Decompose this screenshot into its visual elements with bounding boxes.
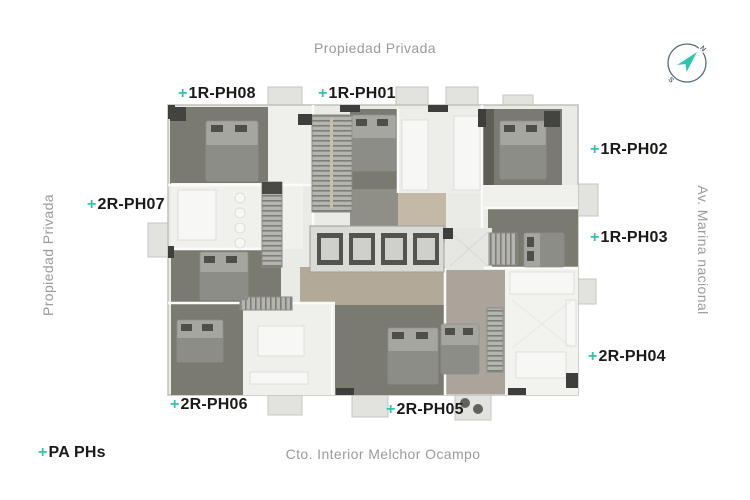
unit-name: 1R-PH02: [601, 141, 668, 158]
plus-icon: +: [588, 348, 598, 365]
unit-label-1r-ph08[interactable]: +1R-PH08: [178, 85, 256, 102]
plus-icon: +: [178, 85, 188, 102]
bed: [206, 121, 258, 181]
unit-label-2r-ph07[interactable]: +2R-PH07: [87, 196, 165, 213]
legend-pa-phs: +PA PHs: [38, 444, 106, 461]
unit-name: 2R-PH04: [599, 348, 666, 365]
bed: [388, 328, 438, 384]
stair-east: [489, 233, 517, 265]
bed: [177, 320, 223, 362]
plus-icon: +: [38, 444, 48, 461]
unit-name: 2R-PH05: [397, 401, 464, 418]
unit-label-2r-ph04[interactable]: +2R-PH04: [588, 348, 666, 365]
plus-icon: +: [87, 196, 97, 213]
unit-name: 1R-PH08: [189, 85, 256, 102]
street-label-top: Propiedad Privada: [314, 40, 436, 56]
bed: [352, 115, 396, 171]
plus-icon: +: [590, 229, 600, 246]
plus-icon: +: [170, 396, 180, 413]
legend-label: PA PHs: [49, 444, 106, 461]
unit-name: 2R-PH07: [98, 196, 165, 213]
street-label-right: Av. Marina nacional: [695, 185, 711, 314]
floor-plan: [0, 0, 750, 500]
compass-needle: [677, 52, 697, 72]
stair-south: [487, 308, 503, 372]
street-label-bottom: Cto. Interior Melchor Ocampo: [286, 446, 481, 462]
compass-icon: N S: [661, 36, 715, 90]
plus-icon: +: [590, 141, 600, 158]
compass-north-label: N: [698, 45, 707, 54]
bed: [441, 324, 479, 374]
bed: [200, 252, 248, 300]
bed: [524, 233, 564, 267]
unit-label-1r-ph01[interactable]: +1R-PH01: [318, 85, 396, 102]
unit-name: 2R-PH06: [181, 396, 248, 413]
unit-label-1r-ph02[interactable]: +1R-PH02: [590, 141, 668, 158]
plus-icon: +: [386, 401, 396, 418]
street-label-left: Propiedad Privada: [40, 194, 56, 316]
unit-name: 1R-PH03: [601, 229, 668, 246]
unit-name: 1R-PH01: [329, 85, 396, 102]
floorplan-page: Propiedad Privada Propiedad Privada Av. …: [0, 0, 750, 500]
terrace-chair: [473, 404, 483, 414]
compass-south-label: S: [666, 76, 674, 84]
plus-icon: +: [318, 85, 328, 102]
unit-label-2r-ph06[interactable]: +2R-PH06: [170, 396, 248, 413]
unit-label-2r-ph05[interactable]: +2R-PH05: [386, 401, 464, 418]
bed: [500, 121, 546, 179]
stair-west: [262, 182, 282, 267]
unit-label-1r-ph03[interactable]: +1R-PH03: [590, 229, 668, 246]
